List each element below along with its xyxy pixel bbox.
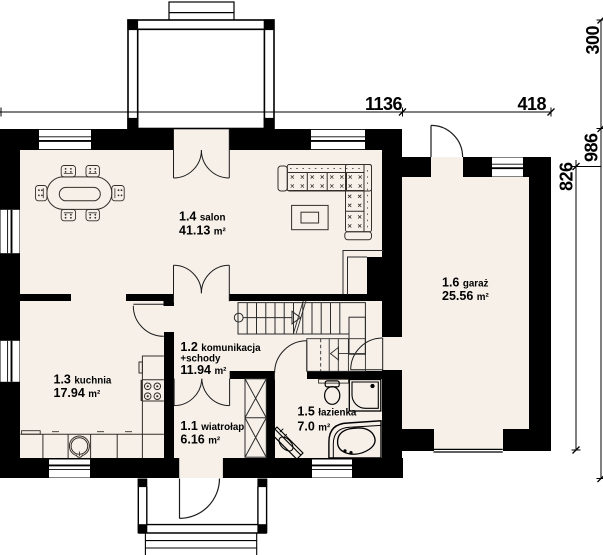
svg-text:1.2 komunikacja: 1.2 komunikacja [180, 340, 261, 354]
svg-text:418: 418 [517, 94, 546, 114]
svg-text:826: 826 [557, 162, 577, 191]
svg-text:1136: 1136 [365, 94, 403, 114]
svg-text:1.3 kuchnia: 1.3 kuchnia [54, 373, 112, 387]
svg-text:17.94 m²: 17.94 m² [54, 386, 101, 400]
svg-text:41.13 m²: 41.13 m² [179, 224, 226, 238]
svg-text:1.4 salon: 1.4 salon [179, 210, 225, 224]
svg-text:7.0 m²: 7.0 m² [297, 420, 331, 434]
svg-text:1.5 łazienka: 1.5 łazienka [297, 405, 357, 419]
svg-text:11.94 m²: 11.94 m² [180, 363, 227, 377]
svg-text:1.1 wiatrołap: 1.1 wiatrołap [180, 419, 244, 433]
svg-text:6.16 m²: 6.16 m² [180, 432, 221, 446]
svg-text:25.56 m²: 25.56 m² [442, 289, 489, 303]
svg-text:300: 300 [583, 25, 603, 54]
svg-text:986: 986 [582, 133, 602, 162]
svg-text:1.6 garaż: 1.6 garaż [442, 275, 489, 289]
